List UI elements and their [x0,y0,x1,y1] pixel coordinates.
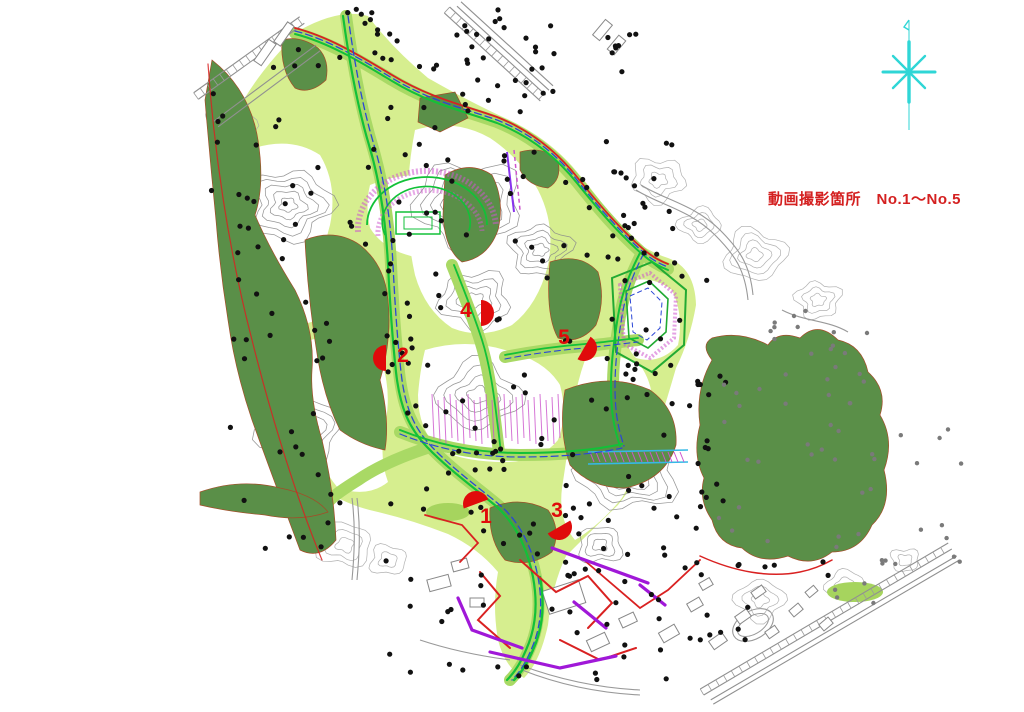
map-canvas: 12345 動画撮影箇所 No.1～No.5 [0,0,1024,712]
camera-point-4: 4 [460,300,472,321]
camera-point-1: 1 [480,506,492,527]
camera-fan-icon [567,331,601,365]
camera-point-2: 2 [397,345,409,366]
map-title: 動画撮影箇所 No.1～No.5 [768,188,961,209]
camera-point-3: 3 [551,500,563,521]
compass-north-icon [859,12,959,138]
camera-point-5: 5 [558,327,570,348]
